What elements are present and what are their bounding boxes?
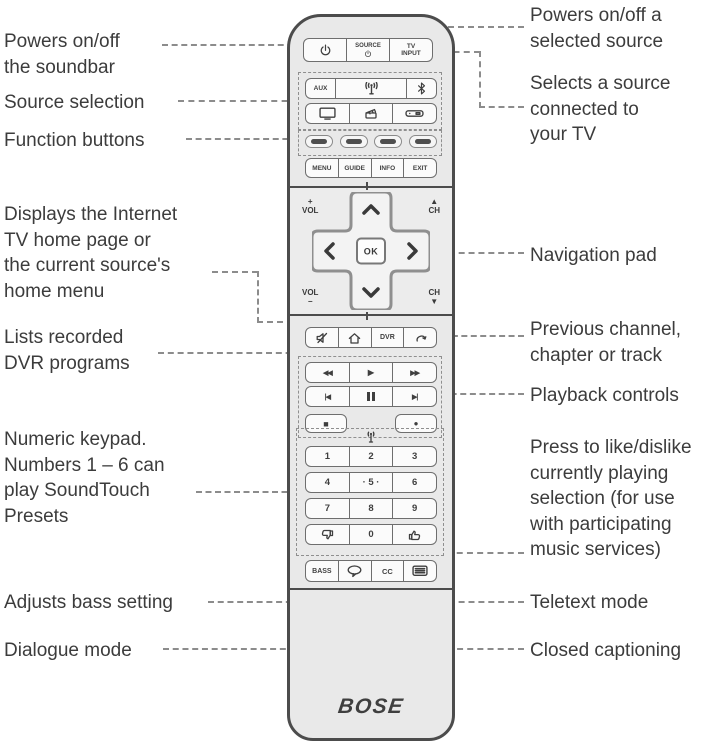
label-like-dislike: Press to like/dislike currently playing … [530, 435, 692, 563]
power-icon [319, 44, 332, 57]
key-6[interactable]: 6 [392, 473, 436, 492]
source-row-2 [305, 103, 437, 124]
key-label: 3 [412, 451, 417, 462]
skip-forward-icon: ▶| [412, 393, 417, 401]
thumbs-down-button[interactable] [306, 525, 349, 544]
aux-button[interactable]: AUX [306, 79, 335, 98]
callout-line [162, 44, 303, 46]
guide-button[interactable]: GUIDE [338, 159, 371, 177]
key-label: 0 [368, 529, 373, 540]
teletext-button[interactable] [403, 561, 436, 581]
channel-up-label: ▲ CH [428, 197, 440, 215]
source-power-button[interactable]: SOURCE [346, 39, 389, 61]
antenna-icon [363, 82, 380, 95]
label-bass-setting: Adjusts bass setting [4, 590, 173, 616]
bluetooth-icon [417, 82, 426, 95]
function-button-3[interactable] [374, 135, 402, 148]
label-dvr-programs: Lists recorded DVR programs [4, 325, 130, 376]
label-closed-captioning: Closed captioning [530, 638, 681, 664]
channel-down-label: CH ▼ [428, 288, 440, 306]
play-icon: ▶ [368, 368, 374, 377]
speech-bubble-icon [346, 565, 363, 578]
key-7[interactable]: 7 [306, 499, 349, 518]
key-9[interactable]: 9 [392, 499, 436, 518]
key-label: 6 [412, 477, 417, 488]
source-row-1: AUX [305, 78, 437, 99]
dialogue-mode-button[interactable] [338, 561, 371, 581]
playback-row-1: ◀◀ ▶ ▶▶ [305, 362, 437, 383]
pause-button[interactable] [349, 387, 393, 406]
bass-button[interactable]: BASS [306, 561, 338, 581]
exit-label: EXIT [413, 165, 427, 172]
media-player-source-button[interactable] [349, 104, 393, 123]
fast-forward-icon: ▶▶ [410, 369, 419, 377]
function-button-4[interactable] [409, 135, 437, 148]
mute-button[interactable] [306, 328, 338, 347]
callout-line [186, 138, 298, 140]
navigation-panel: + VOL ▲ CH VOL − CH ▼ OK [290, 186, 452, 316]
label-previous-channel: Previous channel, chapter or track [530, 317, 681, 368]
mute-home-dvr-row: DVR [305, 327, 437, 348]
record-icon: ● [414, 419, 419, 428]
label-function-buttons: Function buttons [4, 128, 144, 154]
function-button-1[interactable] [305, 135, 333, 148]
home-icon [348, 332, 361, 344]
key-label: 1 [325, 451, 330, 462]
callout-line [212, 271, 258, 273]
menu-row: MENU GUIDE INFO EXIT [305, 158, 437, 178]
label-dialogue-mode: Dialogue mode [4, 638, 132, 664]
fast-forward-button[interactable]: ▶▶ [392, 363, 436, 382]
guide-label: GUIDE [344, 165, 365, 172]
callout-line [178, 100, 298, 102]
callout-line [196, 491, 297, 493]
label-navigation-pad: Navigation pad [530, 243, 657, 269]
tv-source-button[interactable] [306, 104, 349, 123]
keypad-row-1: 1 2 3 [305, 446, 437, 467]
key-1[interactable]: 1 [306, 447, 349, 466]
function-pill [311, 139, 327, 144]
rewind-icon: ◀◀ [323, 369, 332, 377]
key-4[interactable]: 4 [306, 473, 349, 492]
aux-label: AUX [314, 85, 328, 92]
function-pill [415, 139, 431, 144]
power-button[interactable] [304, 39, 346, 61]
label-source-selection: Source selection [4, 90, 144, 116]
callout-line [479, 51, 481, 108]
source-label: SOURCE [355, 43, 381, 49]
set-top-box-source-button[interactable] [392, 104, 436, 123]
closed-captioning-button[interactable]: CC [371, 561, 404, 581]
tv-input-label: TV INPUT [401, 43, 421, 57]
seam-mark [366, 182, 368, 190]
key-8[interactable]: 8 [349, 499, 393, 518]
skip-forward-button[interactable]: ▶| [392, 387, 436, 406]
tv-icon [319, 107, 336, 120]
section-divider [287, 588, 455, 590]
bluetooth-button[interactable] [406, 79, 436, 98]
key-label: 2 [368, 451, 373, 462]
key-label: 9 [412, 503, 417, 514]
previous-channel-button[interactable] [403, 328, 436, 347]
stop-icon: ■ [323, 419, 328, 429]
label-power-soundbar: Powers on/off the soundbar [4, 29, 120, 80]
rewind-button[interactable]: ◀◀ [306, 363, 349, 382]
callout-line [257, 271, 259, 323]
audio-modes-row: BASS CC [305, 560, 437, 582]
function-button-2[interactable] [340, 135, 368, 148]
skip-back-icon: |◀ [325, 393, 330, 401]
label-selects-source: Selects a source connected to your TV [530, 71, 670, 148]
bass-label: BASS [312, 568, 331, 575]
key-label: 7 [325, 503, 330, 514]
seam-mark [366, 312, 368, 320]
keypad-row-4: 0 [305, 524, 437, 545]
thumbs-up-button[interactable] [392, 525, 436, 544]
bose-logo: BOSE [288, 695, 453, 719]
label-home-menu: Displays the Internet TV home page or th… [4, 202, 177, 304]
key-label: 4 [325, 477, 330, 488]
tv-input-button[interactable]: TV INPUT [389, 39, 432, 61]
label-playback-controls: Playback controls [530, 383, 679, 409]
ok-button[interactable]: OK [356, 238, 386, 265]
info-label: INFO [380, 165, 396, 172]
info-button[interactable]: INFO [371, 159, 404, 177]
play-button[interactable]: ▶ [349, 363, 393, 382]
menu-label: MENU [312, 165, 331, 172]
thumbs-down-icon [321, 529, 334, 541]
keypad-row-2: 4 · 5 · 6 [305, 472, 437, 493]
function-pill [346, 139, 362, 144]
remote-control-body: SOURCE TV INPUT AUX [287, 14, 455, 741]
key-0[interactable]: 0 [349, 525, 393, 544]
key-2[interactable]: 2 [349, 447, 393, 466]
function-button-row [305, 135, 437, 148]
keypad-row-3: 7 8 9 [305, 498, 437, 519]
manual-page: Powers on/off the soundbar Source select… [0, 0, 720, 744]
skip-back-button[interactable]: |◀ [306, 387, 349, 406]
home-button[interactable] [338, 328, 371, 347]
power-icon [364, 50, 372, 58]
function-pill [380, 139, 396, 144]
teletext-icon [412, 565, 428, 577]
set-top-box-icon [405, 109, 424, 118]
dvr-label: DVR [380, 334, 395, 341]
exit-button[interactable]: EXIT [403, 159, 436, 177]
key-label: 8 [368, 503, 373, 514]
key-5[interactable]: · 5 · [349, 473, 393, 492]
label-numeric-keypad: Numeric keypad. Numbers 1 – 6 can play S… [4, 427, 165, 529]
media-player-icon [364, 107, 378, 120]
playback-row-2: |◀ ▶| [305, 386, 437, 407]
label-teletext-mode: Teletext mode [530, 590, 648, 616]
antenna-icon [363, 431, 379, 443]
power-row: SOURCE TV INPUT [303, 38, 433, 62]
label-power-source: Powers on/off a selected source [530, 3, 663, 54]
return-arrow-icon [414, 332, 427, 343]
key-label: · 5 · [363, 477, 380, 488]
pause-icon [367, 392, 375, 401]
dvr-button[interactable]: DVR [371, 328, 404, 347]
soundtouch-button[interactable] [335, 79, 406, 98]
callout-line [479, 106, 524, 108]
cc-label: CC [382, 567, 393, 576]
key-3[interactable]: 3 [392, 447, 436, 466]
mute-icon [315, 332, 329, 344]
menu-button[interactable]: MENU [306, 159, 338, 177]
thumbs-up-icon [408, 529, 421, 541]
